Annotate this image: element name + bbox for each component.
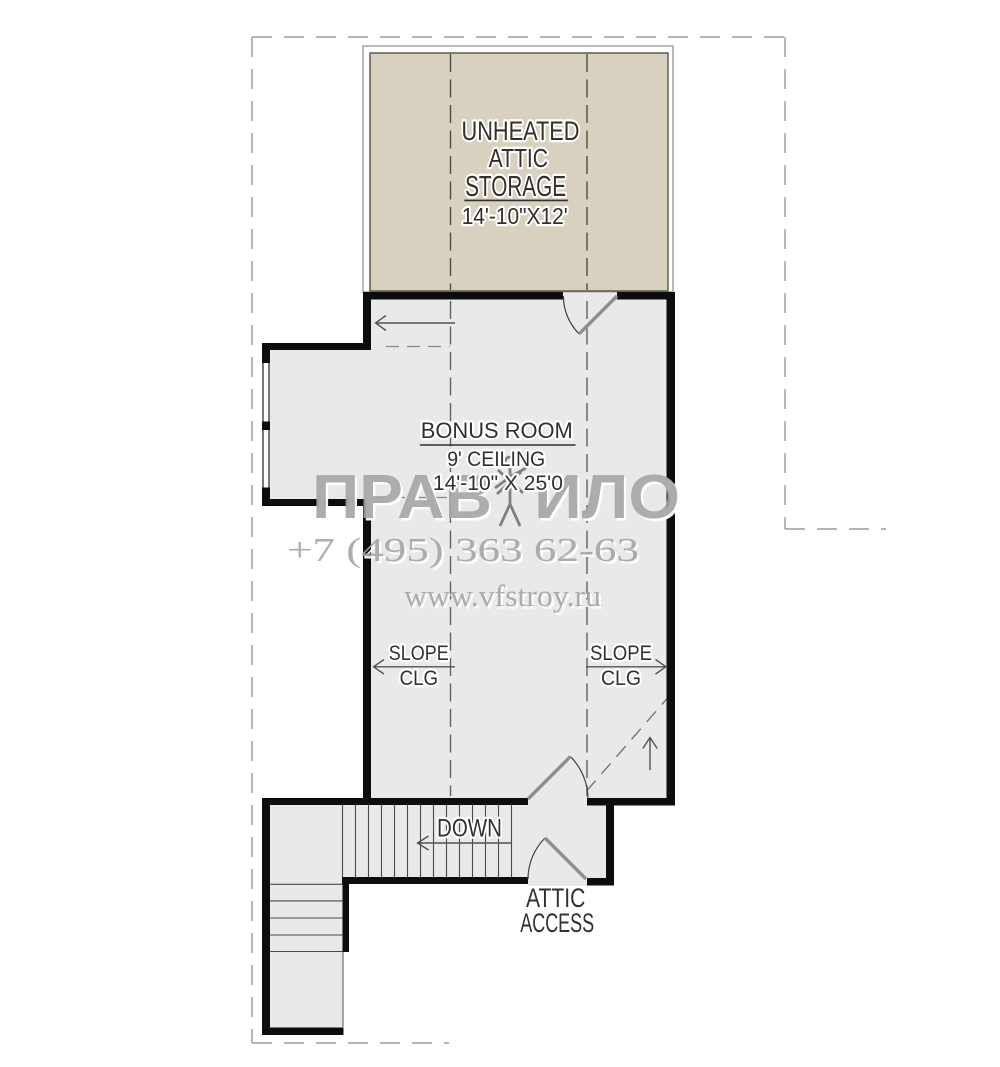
svg-text:ATTIC: ATTIC: [489, 143, 548, 173]
svg-text:www.vfstroy.ru: www.vfstroy.ru: [404, 578, 601, 613]
svg-text:ACCESS: ACCESS: [520, 908, 594, 938]
svg-text:DOWN: DOWN: [437, 815, 502, 843]
svg-text:CLG: CLG: [400, 666, 438, 690]
svg-text:BONUS ROOM: BONUS ROOM: [421, 418, 573, 443]
svg-text:14'-10" X 25'0: 14'-10" X 25'0: [433, 470, 563, 495]
svg-text:STORAGE: STORAGE: [465, 171, 566, 203]
svg-text:14'-10"X12': 14'-10"X12': [462, 203, 568, 229]
svg-text:+7 (495) 363 62-63: +7 (495) 363 62-63: [287, 532, 639, 569]
svg-text:SLOPE: SLOPE: [590, 641, 652, 665]
svg-text:9' CEILING: 9' CEILING: [447, 446, 545, 471]
svg-text:CLG: CLG: [601, 666, 641, 690]
svg-text:SLOPE: SLOPE: [389, 641, 449, 665]
svg-text:UNHEATED: UNHEATED: [462, 115, 580, 146]
